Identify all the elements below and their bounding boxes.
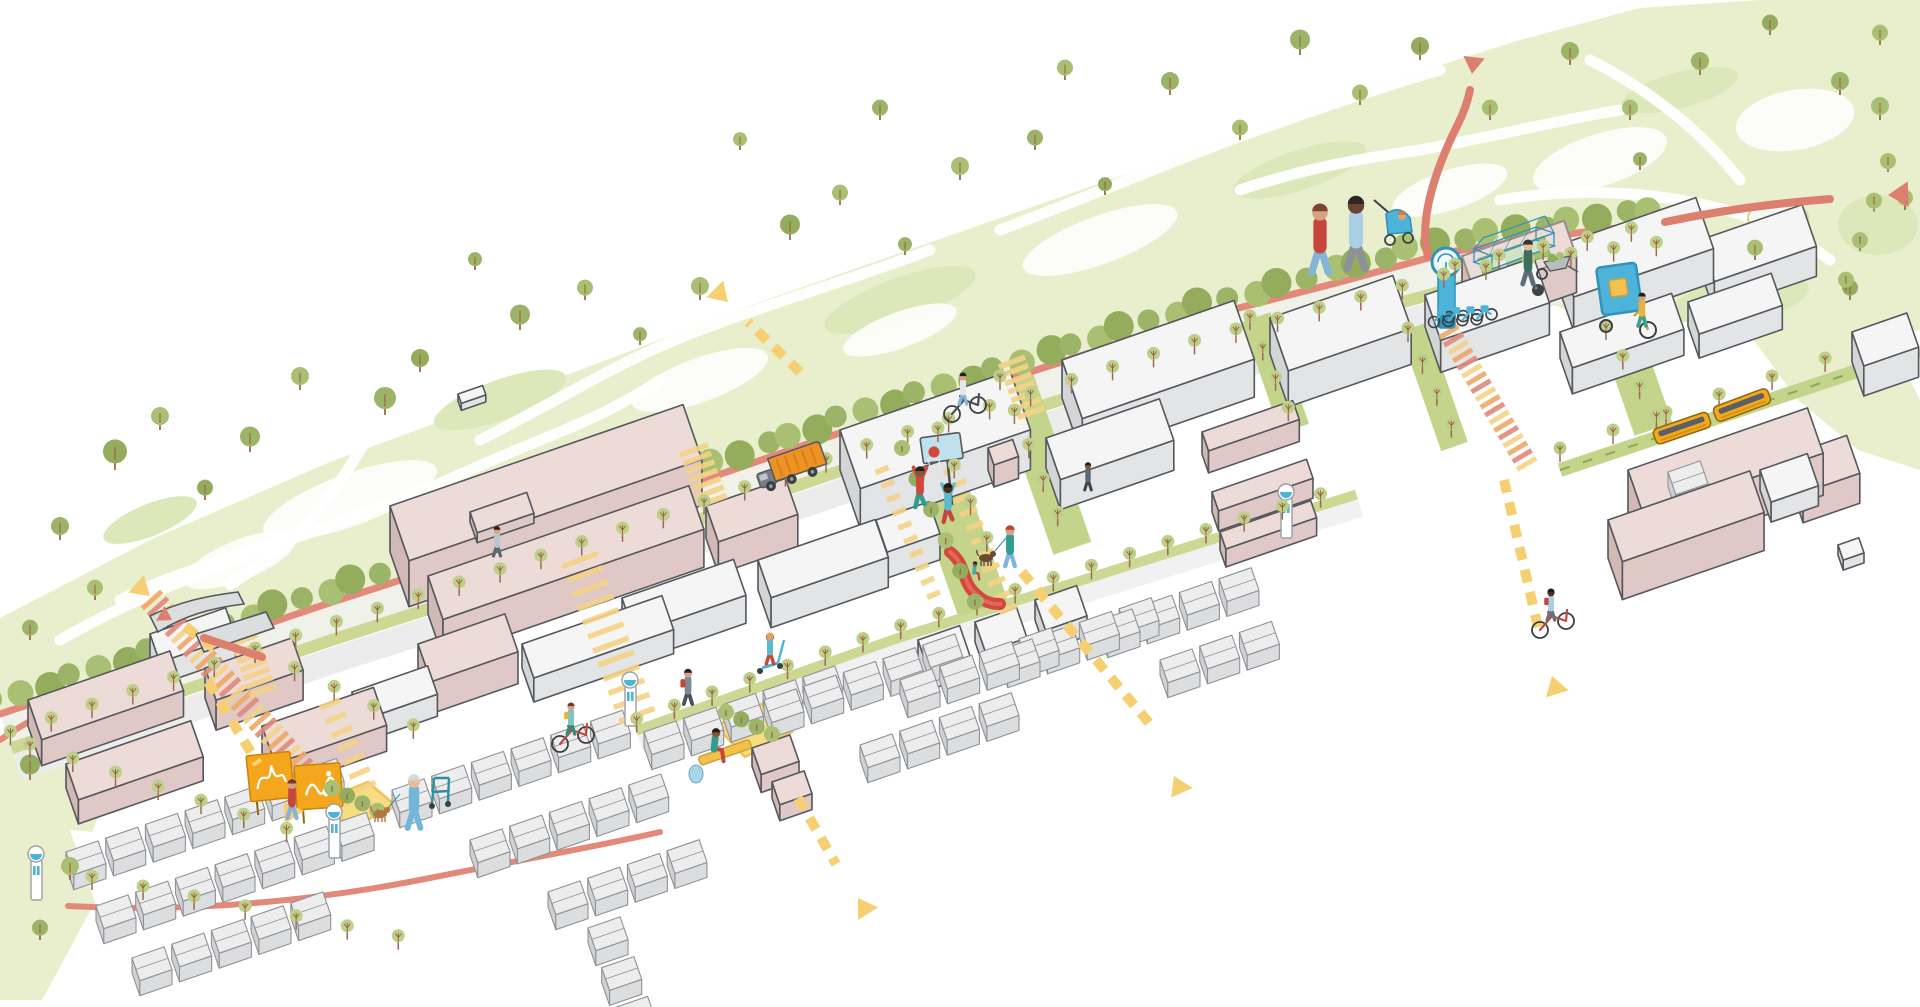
existing-small-building [211, 919, 251, 968]
park-tree [291, 367, 309, 390]
connection-arrow-south-east [1504, 480, 1540, 636]
connection-arrow-south-plaza [798, 798, 836, 864]
park-tree [468, 252, 482, 270]
tree [291, 587, 313, 609]
tree [718, 704, 734, 720]
tree [339, 788, 355, 804]
park-tree [510, 305, 530, 331]
park-tree [197, 480, 213, 500]
tree [407, 718, 420, 739]
park-tree [1057, 60, 1073, 80]
existing-small-building [1160, 649, 1200, 698]
park-tree [240, 427, 260, 453]
existing-small-building [132, 947, 172, 996]
existing-small-building [215, 854, 255, 903]
new-building-block [988, 440, 1019, 488]
park-tree [951, 157, 969, 180]
existing-small-building [1239, 621, 1279, 670]
existing-small-building [939, 706, 979, 755]
tree [1766, 369, 1779, 390]
existing-small-building [255, 840, 295, 889]
tree [1607, 423, 1620, 444]
tree [1392, 234, 1418, 260]
existing-small-building [588, 867, 628, 916]
existing-building-block [1838, 538, 1864, 570]
existing-small-building [172, 933, 212, 982]
existing-small-building [145, 813, 185, 862]
tree [335, 565, 365, 595]
existing-small-building [602, 957, 642, 1006]
park-tree [51, 517, 69, 540]
cyclist-yellow-backpack [564, 703, 575, 734]
dog-walker [1005, 525, 1015, 566]
existing-small-building [667, 840, 707, 889]
park-tree [872, 100, 888, 120]
existing-small-building [96, 895, 136, 944]
tree [239, 899, 252, 920]
cyclist-boy-south-east [1544, 589, 1555, 620]
park-tree [577, 280, 593, 300]
wayfinding-totem-4 [28, 846, 44, 900]
tree [825, 405, 847, 427]
walker-red-backpack [680, 669, 692, 704]
park-tree [1290, 30, 1310, 56]
scooter-girl [766, 633, 773, 664]
tree [952, 563, 968, 579]
existing-small-building [1200, 635, 1240, 684]
tree [1059, 333, 1081, 355]
masterplan-illustration [0, 0, 1920, 1007]
park-tree [1411, 37, 1429, 60]
existing-small-building [627, 853, 667, 902]
tree [725, 440, 755, 470]
tree [967, 594, 983, 610]
existing-small-building [1179, 581, 1219, 630]
tree [280, 822, 293, 843]
existing-small-building [106, 827, 146, 876]
park-tree [103, 439, 127, 470]
tree [1261, 268, 1291, 298]
park-tree [780, 215, 800, 241]
existing-small-building [589, 788, 629, 837]
tree [733, 711, 749, 727]
tree [775, 423, 801, 449]
existing-small-building [629, 774, 669, 823]
tree [764, 726, 780, 742]
masterplan-svg [0, 0, 1920, 1007]
park-tree [633, 327, 647, 345]
basketball [929, 447, 940, 458]
existing-small-building [471, 751, 511, 800]
park-tree [1161, 72, 1179, 95]
existing-small-building [588, 917, 628, 966]
existing-small-building [860, 734, 900, 783]
existing-small-building [548, 881, 588, 930]
tree [1554, 442, 1567, 463]
leash [994, 538, 1006, 552]
tree [369, 563, 391, 585]
tree [341, 919, 354, 940]
park-tree [411, 349, 429, 372]
tree [1472, 218, 1498, 244]
tree [324, 780, 340, 796]
existing-small-building [1219, 568, 1259, 617]
existing-small-building [432, 765, 472, 814]
bag [689, 765, 703, 783]
wayfinding-totem-1 [326, 804, 342, 858]
tree [903, 381, 925, 403]
existing-small-building [900, 720, 940, 769]
tree [749, 719, 765, 735]
tree [354, 795, 370, 811]
tree [392, 929, 405, 950]
tree [58, 663, 80, 685]
existing-small-building [251, 906, 291, 955]
existing-small-building [979, 693, 1019, 742]
tree [938, 532, 954, 548]
park-tree [832, 185, 848, 205]
park-tree [1027, 130, 1043, 150]
park-tree [151, 407, 169, 430]
existing-small-building [511, 738, 551, 787]
park-tree [733, 132, 747, 150]
existing-small-building [470, 829, 510, 878]
existing-small-building [185, 800, 225, 849]
tree [894, 440, 910, 456]
existing-small-building [549, 801, 589, 850]
